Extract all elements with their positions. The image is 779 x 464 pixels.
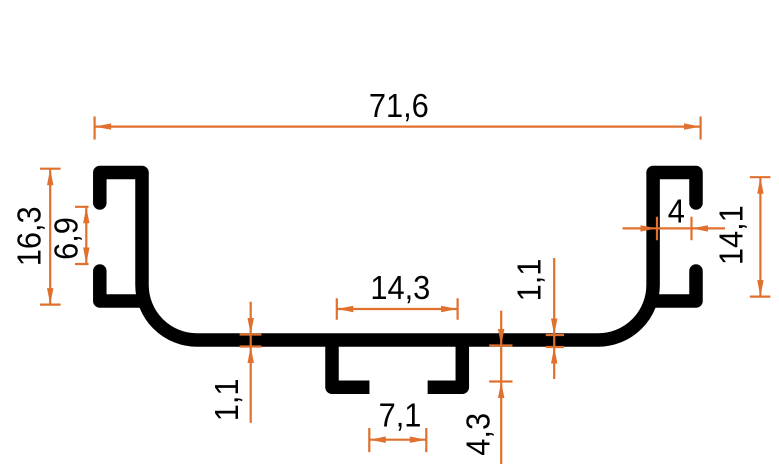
svg-text:16,3: 16,3 <box>10 206 47 266</box>
svg-text:14,3: 14,3 <box>370 269 430 306</box>
svg-text:6,9: 6,9 <box>47 217 84 260</box>
svg-text:7,1: 7,1 <box>379 396 422 433</box>
svg-text:14,1: 14,1 <box>712 205 749 265</box>
svg-text:1,1: 1,1 <box>208 378 245 421</box>
svg-text:4: 4 <box>668 192 685 229</box>
svg-text:1,1: 1,1 <box>510 259 547 302</box>
svg-text:71,6: 71,6 <box>369 87 429 124</box>
svg-text:4,3: 4,3 <box>459 413 496 456</box>
